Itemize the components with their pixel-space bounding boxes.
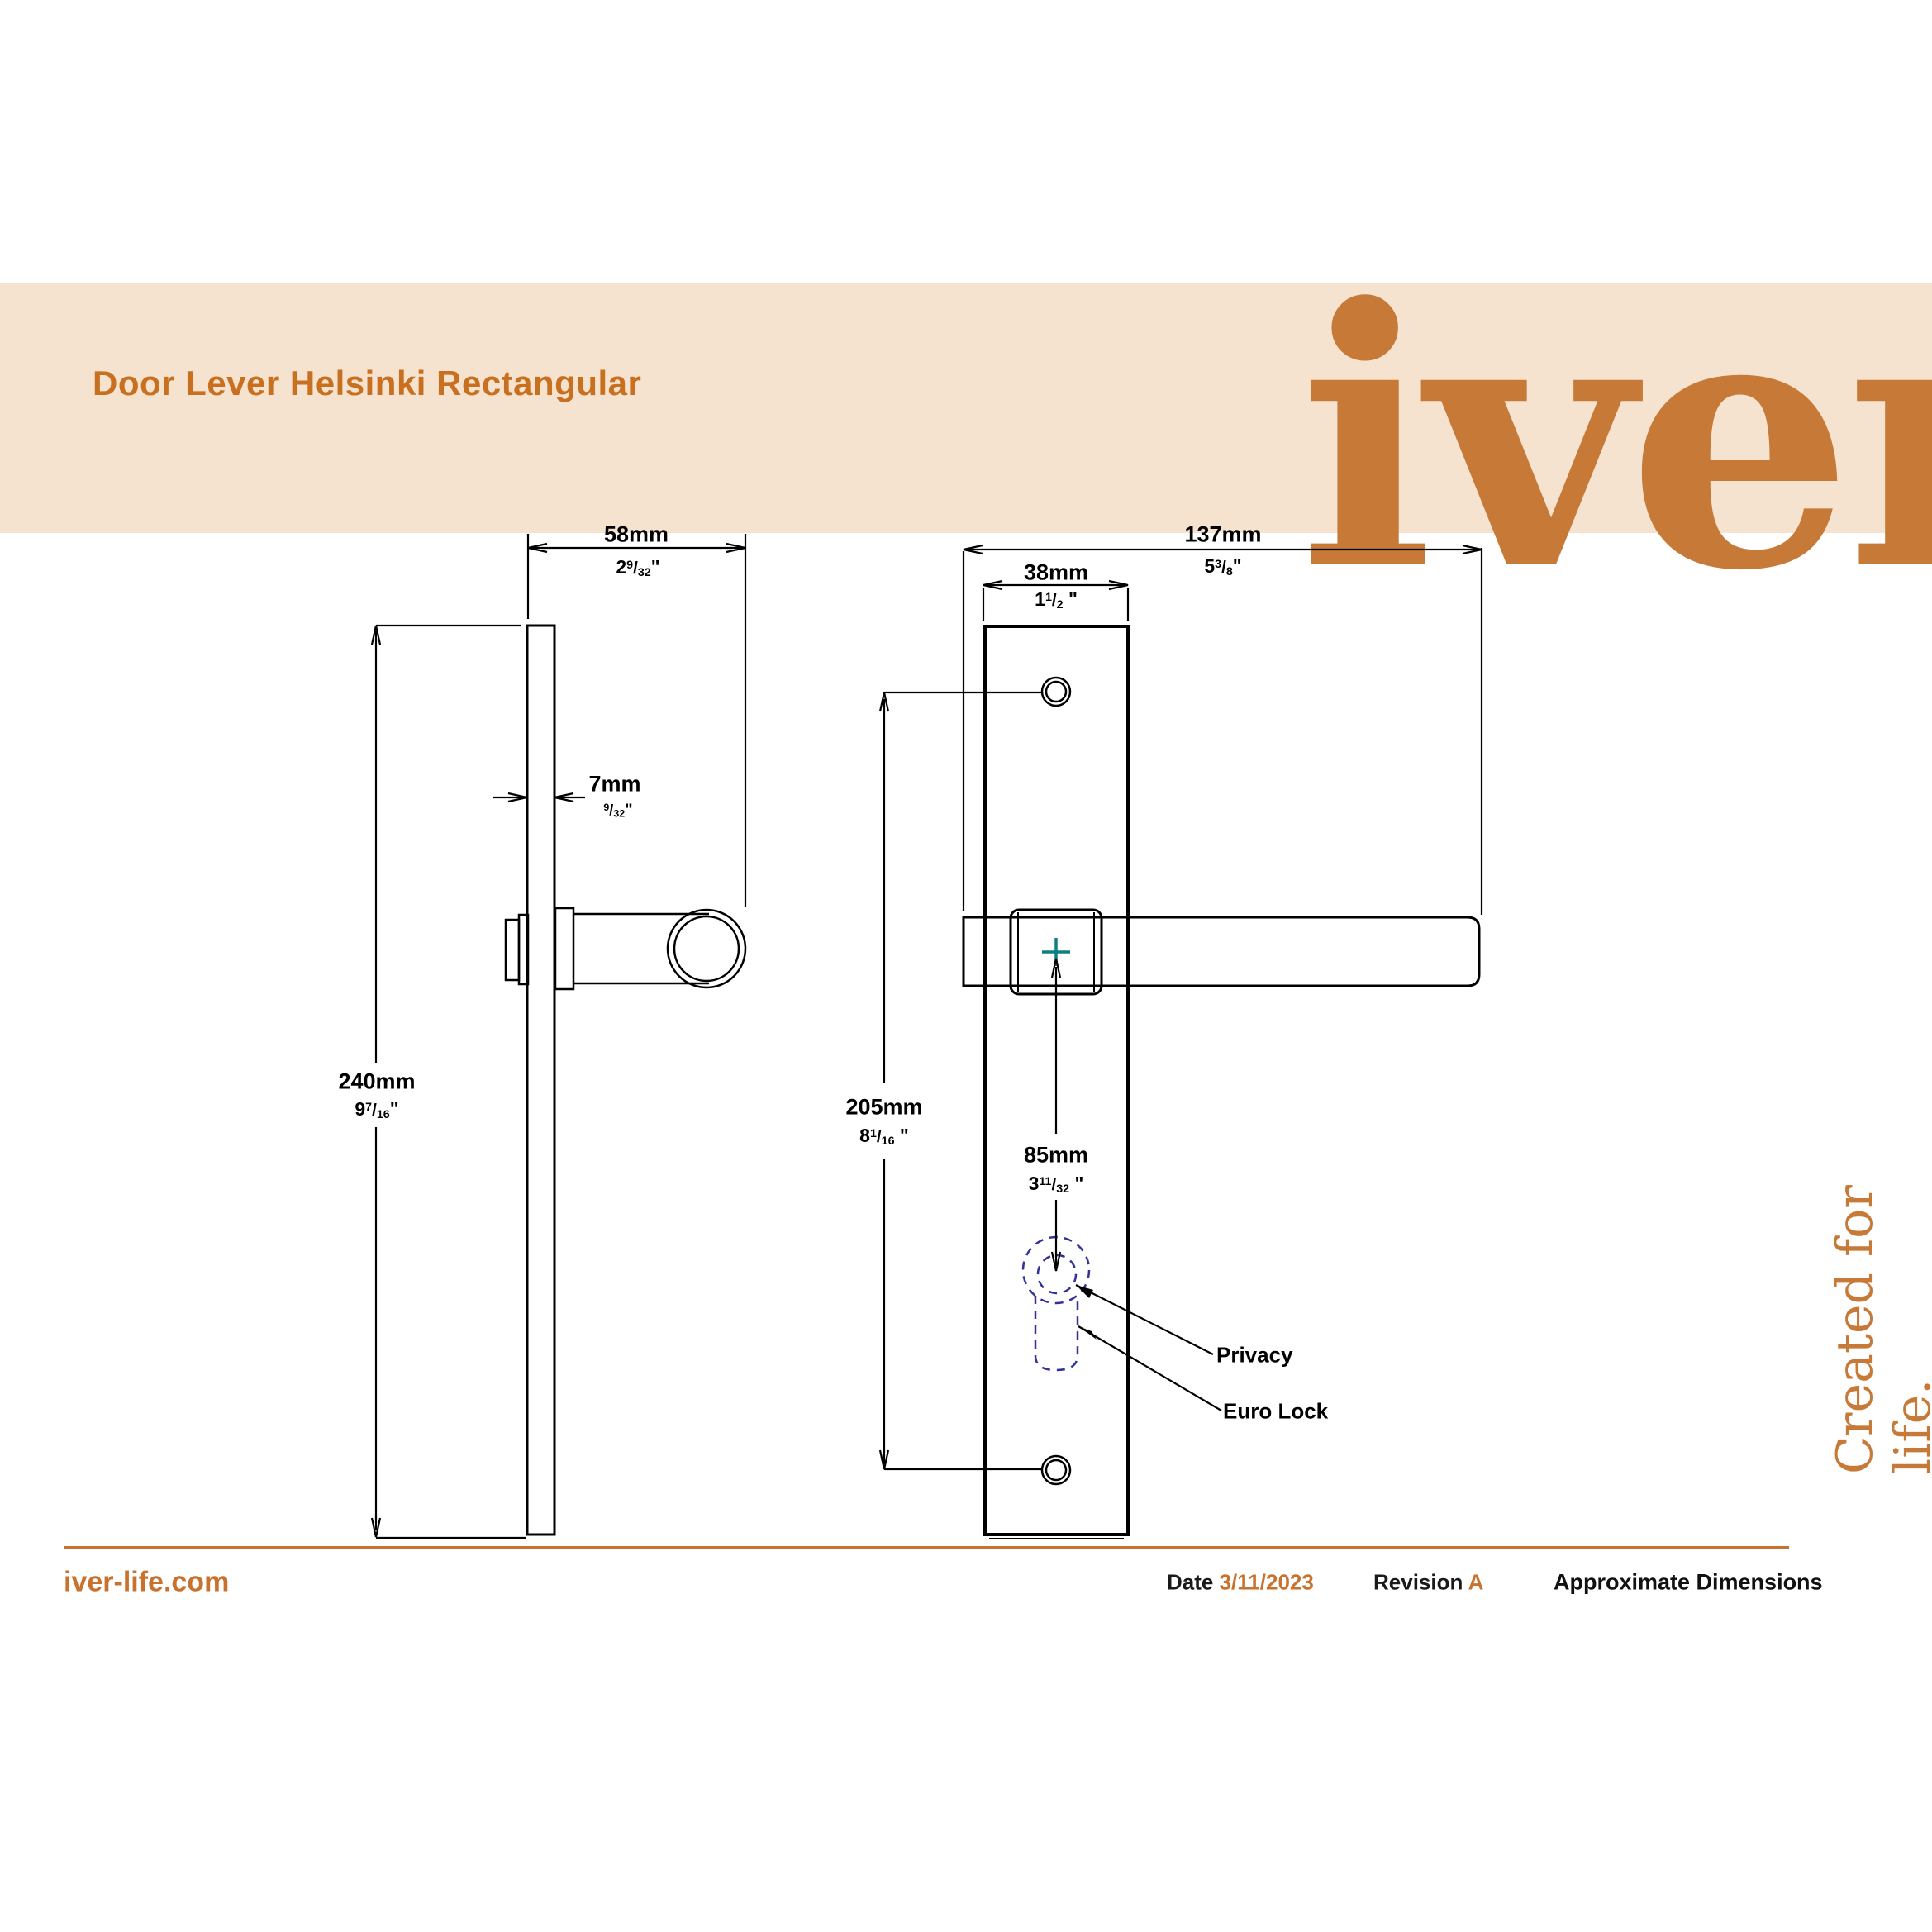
dim-205mm-label: 205mm — [845, 1095, 922, 1121]
dim-85-inch-label: 311/32 " — [1029, 1173, 1084, 1196]
euro-lock-callout-label: Euro Lock — [1223, 1399, 1328, 1425]
front-top-screw-hole-inner — [1046, 682, 1066, 702]
technical-drawing — [0, 0, 1932, 1932]
dim-38-inch-label: 11/2 " — [1035, 588, 1078, 611]
dim-38mm-label: 38mm — [1024, 560, 1088, 586]
front-bottom-screw-hole-inner — [1046, 1460, 1066, 1480]
front-view-dimensions — [880, 545, 1482, 1469]
website-link[interactable]: iver-life.com — [64, 1567, 229, 1599]
dim-58mm-label: 58mm — [604, 522, 669, 548]
privacy-leader-line — [1076, 1285, 1213, 1354]
revision-value: A — [1468, 1570, 1484, 1595]
dim-85mm-label: 85mm — [1024, 1143, 1088, 1168]
side-grip-outer-circle — [668, 910, 745, 987]
side-view-dimensions — [372, 534, 745, 1538]
dim-205-inch-label: 81/16 " — [859, 1125, 909, 1148]
dim-58-inch-label: 29/32" — [616, 556, 659, 579]
dim-240mm-label: 240mm — [338, 1069, 415, 1095]
approximate-dimensions-note: Approximate Dimensions — [1554, 1570, 1823, 1596]
side-lever-hub — [555, 908, 573, 989]
side-view-drawing — [506, 626, 745, 1535]
dim-137mm-label: 137mm — [1184, 522, 1261, 548]
date-label: Date — [1167, 1570, 1213, 1595]
side-plate-outline — [527, 626, 554, 1535]
dim-7mm-label: 7mm — [588, 772, 640, 797]
side-grip-inner-circle — [674, 916, 739, 981]
dim-240-inch-label: 97/16" — [355, 1098, 398, 1121]
keyhole-stem — [1035, 1296, 1078, 1370]
footer-divider — [64, 1546, 1789, 1549]
revision-field: Revision A — [1373, 1570, 1483, 1596]
front-view-drawing — [964, 626, 1479, 1539]
dim-7-inch-label: 9/32" — [603, 802, 632, 821]
front-lever-bar — [964, 917, 1479, 986]
date-value: 3/11/2023 — [1220, 1570, 1314, 1595]
euro-lock-leader-arrow — [1078, 1326, 1097, 1340]
date-field: Date 3/11/2023 — [1167, 1570, 1314, 1596]
side-spindle-cap — [506, 920, 519, 980]
privacy-callout-label: Privacy — [1216, 1343, 1293, 1368]
revision-label: Revision — [1373, 1570, 1463, 1595]
spec-sheet: Door Lever Helsinki Rectangular iver Cre… — [0, 0, 1932, 1932]
dim-137-inch-label: 53/8" — [1204, 555, 1241, 578]
euro-lock-leader-line — [1078, 1326, 1221, 1411]
